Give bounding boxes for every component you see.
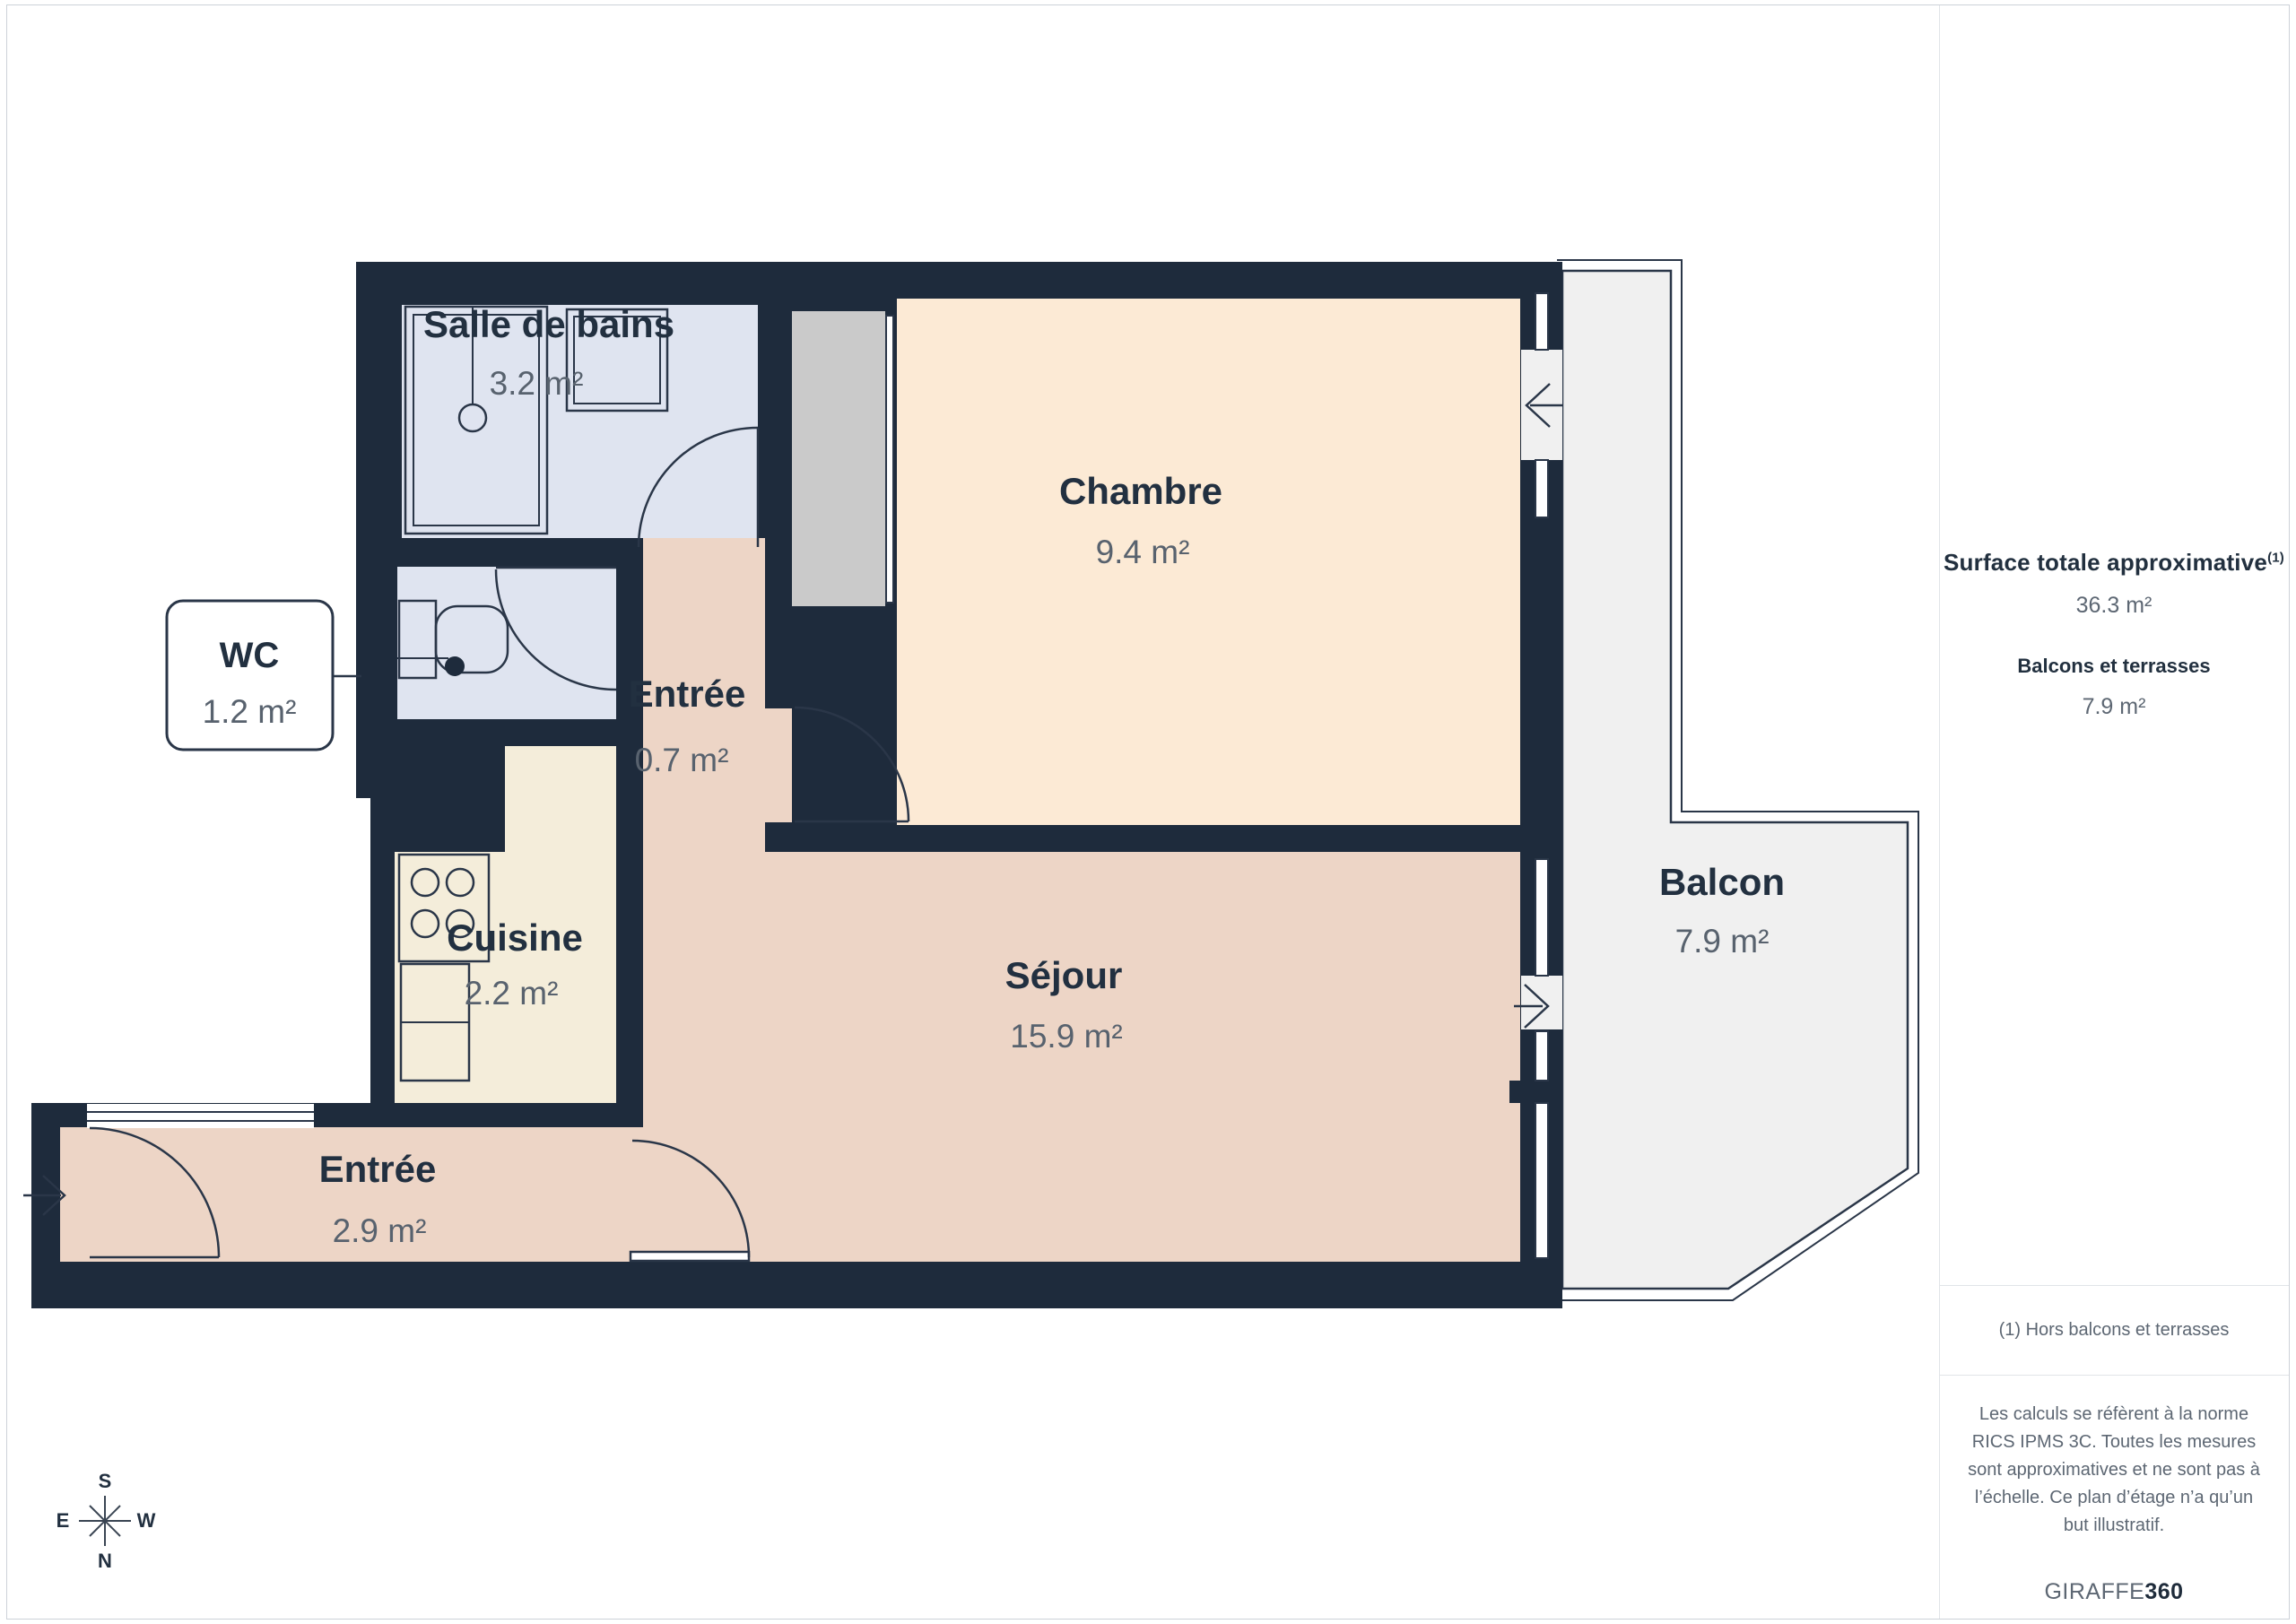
area-sejour: 15.9 m²: [1010, 1018, 1122, 1055]
area-cuisine: 2.2 m²: [465, 975, 559, 1012]
sejour-window-2: [1535, 1031, 1548, 1081]
balcony-outline: [1557, 260, 1918, 1300]
chambre-window-1: [1535, 293, 1548, 350]
area-entree-bas: 2.9 m²: [333, 1212, 427, 1249]
chambre-window-2: [1535, 460, 1548, 517]
label-entree-haut: Entrée: [629, 673, 746, 715]
room-sejour-floor: [60, 825, 1520, 1262]
footnote-marker: (1): [2267, 550, 2284, 565]
sidebar-divider: [1939, 5, 1940, 1619]
sejour-balcony-opening: [1521, 976, 1562, 1029]
area-chambre: 9.4 m²: [1096, 534, 1190, 570]
total-surface-value: 36.3 m²: [1939, 593, 2289, 619]
label-entree-bas: Entrée: [319, 1148, 437, 1190]
closet-glass-partition: [886, 316, 893, 603]
footnote-block: (1) Hors balcons et terrasses: [1939, 1320, 2289, 1341]
surface-summary: Surface totale approximative(1) 36.3 m² …: [1939, 549, 2289, 720]
compass-s: S: [99, 1470, 112, 1492]
label-salle-de-bains: Salle de bains: [423, 303, 674, 345]
room-chambre-floor: [897, 299, 1520, 825]
chambre-door-opening: [765, 708, 792, 822]
wc-callout: WC 1.2 m²: [167, 601, 361, 750]
sidebar-rule-2: [1940, 1375, 2289, 1376]
sejour-wall-block: [1509, 1081, 1527, 1103]
compass-w: W: [137, 1509, 156, 1532]
label-cuisine: Cuisine: [447, 916, 583, 959]
measurements-sidebar: Surface totale approximative(1) 36.3 m² …: [1939, 0, 2289, 1624]
label-wc: WC: [220, 636, 280, 675]
brand-giraffe: GIRAFFE: [2044, 1579, 2144, 1604]
compass-icon: [79, 1496, 131, 1546]
toilet-button: [445, 656, 465, 676]
compass-e: E: [57, 1509, 70, 1532]
area-salle-de-bains: 3.2 m²: [490, 365, 584, 402]
sejour-window-1: [1535, 859, 1548, 976]
closet-floor: [792, 311, 885, 606]
total-surface-label: Surface totale approximative(1): [1939, 549, 2289, 577]
label-balcon: Balcon: [1659, 861, 1785, 903]
area-balcon: 7.9 m²: [1675, 923, 1770, 960]
area-entree-haut: 0.7 m²: [635, 742, 729, 778]
area-wc: 1.2 m²: [203, 693, 297, 730]
compass-n: N: [98, 1550, 112, 1572]
balconies-label: Balcons et terrasses: [1939, 655, 2289, 678]
sejour-window-3: [1535, 1103, 1548, 1258]
sidebar-rule-1: [1940, 1285, 2289, 1286]
label-sejour: Séjour: [1005, 954, 1123, 996]
disclaimer-block: Les calculs se réfèrent à la norme RICS …: [1939, 1401, 2289, 1605]
giraffe360-logo: GIRAFFE360: [1939, 1579, 2289, 1605]
footnote-text: (1) Hors balcons et terrasses: [1939, 1320, 2289, 1341]
disclaimer-text: Les calculs se réfèrent à la norme RICS …: [1966, 1401, 2262, 1540]
balcony-floor: [1562, 271, 1908, 1289]
label-chambre: Chambre: [1059, 470, 1222, 512]
brand-360: 360: [2144, 1579, 2183, 1604]
entry-door-threshold: [87, 1104, 314, 1128]
balconies-value: 7.9 m²: [1939, 694, 2289, 720]
